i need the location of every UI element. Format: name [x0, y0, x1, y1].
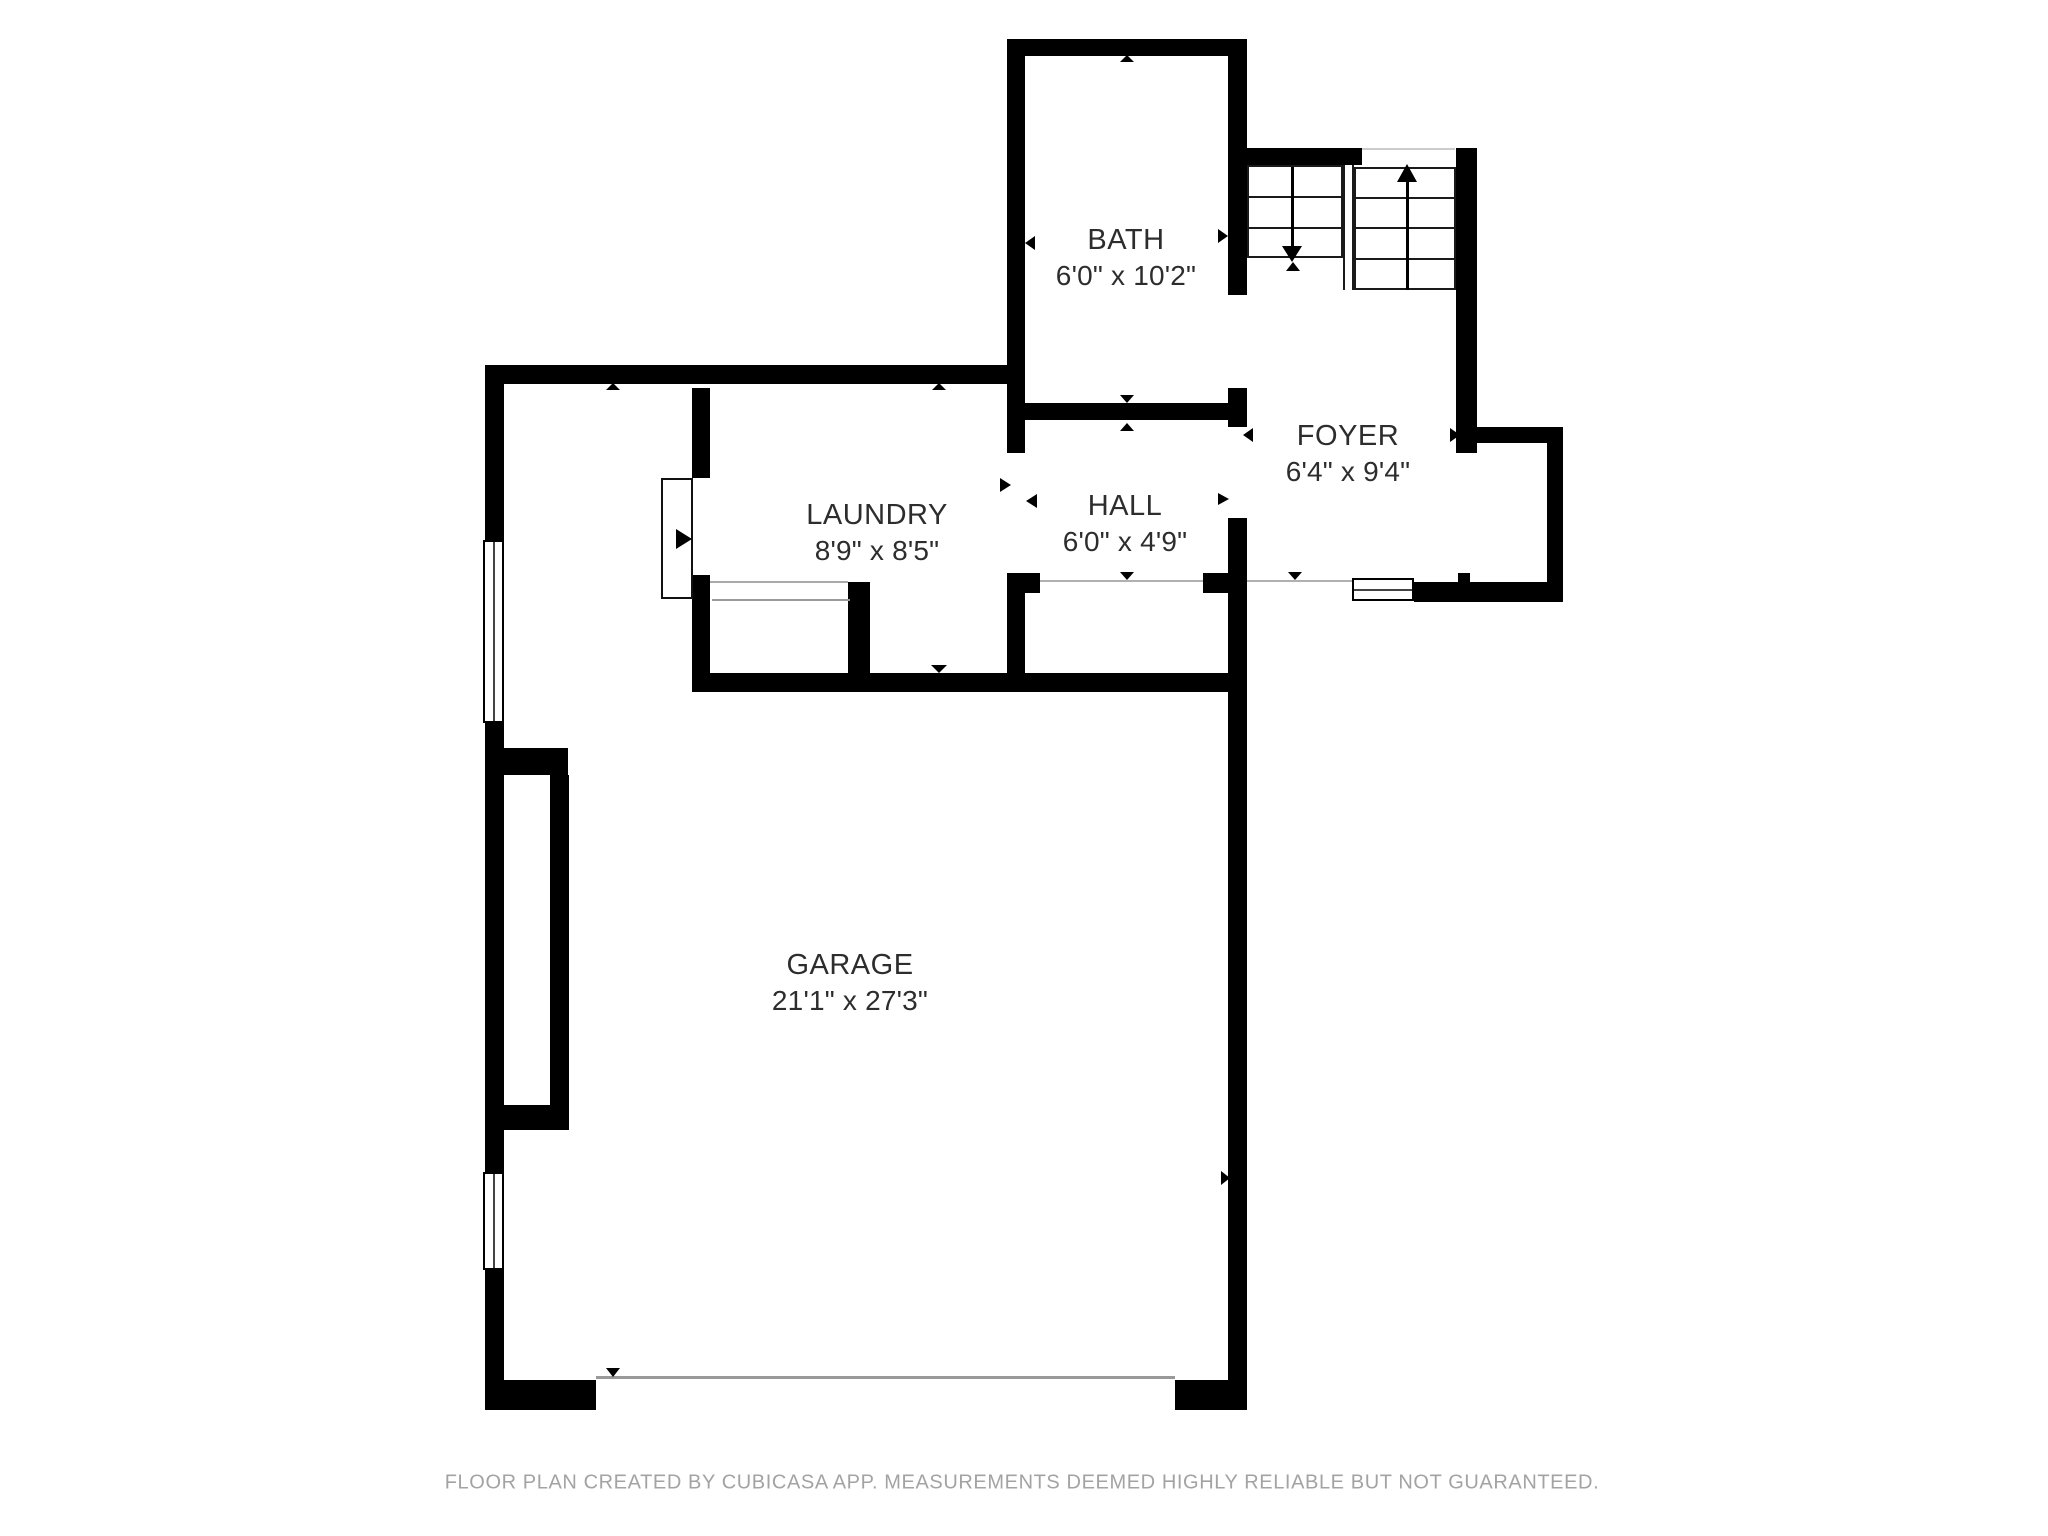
down-arrow-icon	[1282, 246, 1302, 262]
room-name-hall: HALL	[1063, 488, 1188, 524]
opening-marker-icon	[1218, 493, 1229, 505]
footer-disclaimer: FLOOR PLAN CREATED BY CUBICASA APP. MEAS…	[445, 1472, 1600, 1495]
up-arrow-icon	[1397, 164, 1417, 182]
wall-bath-left	[1007, 39, 1025, 453]
stairs-down-arrow-stem	[1291, 167, 1294, 249]
hall-opening-line	[1040, 580, 1203, 582]
window-pane-line	[493, 1174, 495, 1268]
wall-left-below-window	[485, 1270, 504, 1380]
opening-marker-icon	[1026, 494, 1037, 508]
room-name-garage: GARAGE	[772, 947, 928, 983]
wall-hall-top	[1025, 403, 1228, 420]
wall-left-upper	[485, 365, 504, 542]
stairs-overhead-line	[1362, 148, 1455, 150]
stair-step-line	[1356, 227, 1454, 229]
wall-garage-top-left	[485, 748, 568, 775]
wall-closet-left-stub-top	[1458, 443, 1470, 453]
wall-closet-left-stub-bottom	[1458, 573, 1470, 582]
nook-step-line-2	[712, 599, 850, 601]
room-dims-garage: 21'1" x 27'3"	[772, 983, 928, 1019]
staircase-right-column	[1354, 167, 1456, 290]
room-dims-bath: 6'0" x 10'2"	[1056, 258, 1196, 294]
stair-step-line	[1249, 196, 1341, 198]
opening-marker-icon	[931, 665, 947, 673]
opening-marker-icon	[1450, 428, 1460, 442]
window-pane-line	[493, 542, 495, 721]
wall-hall-bottom-left-stub	[1007, 573, 1040, 593]
room-label-hall: HALL 6'0" x 4'9"	[1063, 488, 1188, 560]
stairs-small-up-marker-icon	[1286, 262, 1300, 271]
opening-marker-icon	[1288, 572, 1302, 580]
wall-foyer-right	[1456, 148, 1477, 453]
window-left-lower	[483, 1172, 504, 1270]
floor-plan: BATH 6'0" x 10'2" LAUNDRY 8'9" x 8'5" HA…	[0, 0, 2048, 1536]
wall-bath-top	[1007, 39, 1247, 56]
wall-garage-bottom-left-stub	[485, 1380, 596, 1410]
room-dims-foyer: 6'4" x 9'4"	[1286, 454, 1411, 490]
wall-bumpout-bottom	[504, 1105, 569, 1130]
wall-garage-right	[1228, 518, 1247, 1410]
wall-left-lower	[485, 775, 504, 1172]
wall-hall-bottom-right-stub	[1203, 573, 1228, 593]
foyer-entry-line	[1247, 580, 1352, 582]
wall-top	[485, 365, 1025, 384]
wall-garage-top	[692, 673, 1247, 692]
room-name-laundry: LAUNDRY	[806, 497, 948, 533]
room-dims-laundry: 8'9" x 8'5"	[806, 533, 948, 569]
opening-marker-icon	[1000, 478, 1011, 492]
stair-step-line	[1356, 197, 1454, 199]
door-swing-arrow-icon	[676, 529, 692, 549]
opening-marker-icon	[1025, 236, 1035, 250]
wall-bath-right	[1228, 39, 1247, 295]
opening-marker-icon	[1120, 572, 1134, 580]
opening-marker-icon	[932, 383, 946, 390]
opening-marker-icon	[1218, 229, 1228, 243]
wall-bumpout-inner	[550, 775, 569, 1130]
room-label-garage: GARAGE 21'1" x 27'3"	[772, 947, 928, 1019]
room-label-laundry: LAUNDRY 8'9" x 8'5"	[806, 497, 948, 569]
room-dims-hall: 6'0" x 4'9"	[1063, 524, 1188, 560]
opening-marker-icon	[606, 383, 620, 390]
opening-marker-icon	[1120, 395, 1134, 403]
window-foyer	[1352, 578, 1414, 601]
wall-closet-bottom	[1414, 582, 1563, 602]
nook-step-line-1	[710, 581, 848, 583]
wall-stairs-top	[1245, 148, 1362, 165]
room-name-foyer: FOYER	[1286, 418, 1411, 454]
wall-closet-right	[1547, 427, 1563, 602]
room-label-foyer: FOYER 6'4" x 9'4"	[1286, 418, 1411, 490]
opening-marker-icon	[1120, 55, 1134, 62]
staircase-left-column	[1247, 165, 1343, 258]
window-pane-line	[1354, 589, 1412, 591]
wall-bath-bottom-right-stub	[1228, 388, 1247, 427]
stair-step-line	[1249, 227, 1341, 229]
stairs-up-arrow-stem	[1406, 182, 1409, 290]
opening-marker-icon	[1221, 1171, 1230, 1185]
opening-marker-icon	[1120, 423, 1134, 431]
wall-laundry-left-top	[692, 388, 710, 478]
room-label-bath: BATH 6'0" x 10'2"	[1056, 222, 1196, 294]
garage-door-line	[596, 1376, 1175, 1379]
room-name-bath: BATH	[1056, 222, 1196, 258]
opening-marker-icon	[1243, 428, 1253, 442]
window-left-upper	[483, 540, 504, 723]
garage-door-marker-icon	[606, 1368, 620, 1377]
stair-step-line	[1356, 258, 1454, 260]
staircase-divider	[1343, 165, 1354, 290]
